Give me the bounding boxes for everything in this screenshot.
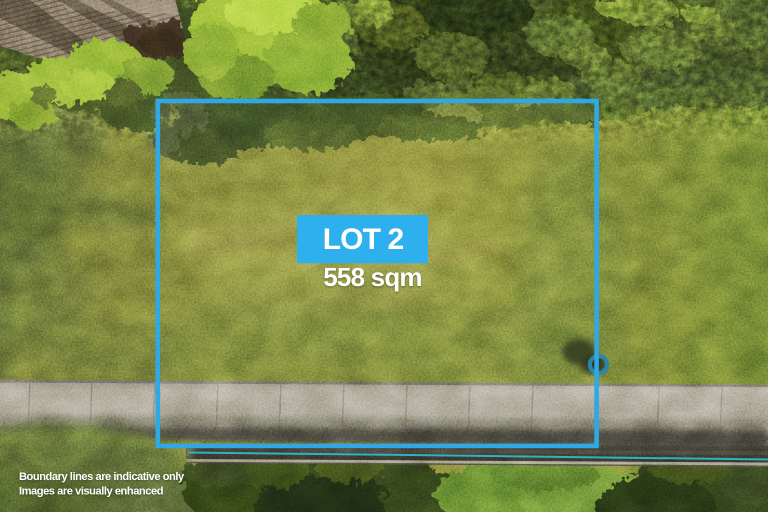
svg-text:LOT 2: LOT 2	[323, 223, 404, 256]
svg-text:Boundary lines are indicative: Boundary lines are indicative only	[19, 471, 185, 483]
svg-text:558 sqm: 558 sqm	[323, 262, 421, 292]
svg-text:Images are visually enhanced: Images are visually enhanced	[19, 486, 164, 498]
